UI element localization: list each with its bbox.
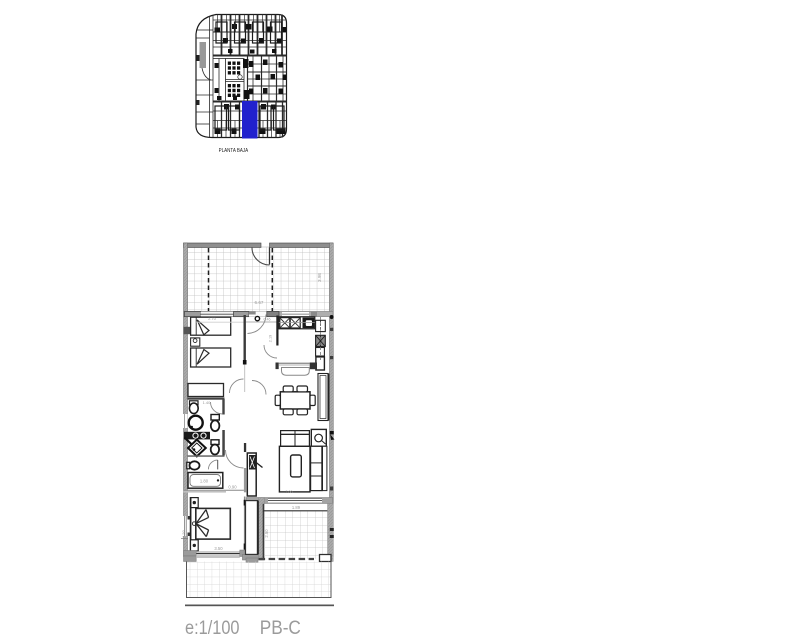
svg-text:2.50: 2.50 [264,529,269,538]
svg-text:2.19: 2.19 [269,335,273,342]
svg-text:1.50: 1.50 [182,530,186,537]
svg-text:PLANTA BAJA: PLANTA BAJA [219,148,249,154]
svg-text:6.67: 6.67 [255,300,264,305]
svg-text:e:1/100: e:1/100 [185,617,240,639]
svg-text:0.90: 0.90 [228,485,237,490]
svg-text:1.80: 1.80 [200,479,209,484]
svg-text:3.50: 3.50 [214,546,223,551]
svg-text:PB-C: PB-C [260,617,301,639]
svg-text:3.98: 3.98 [317,273,322,282]
svg-text:2.00: 2.00 [286,490,293,494]
svg-text:1.89: 1.89 [292,505,301,510]
svg-text:1.40: 1.40 [203,400,212,405]
svg-text:2.70: 2.70 [208,316,217,321]
